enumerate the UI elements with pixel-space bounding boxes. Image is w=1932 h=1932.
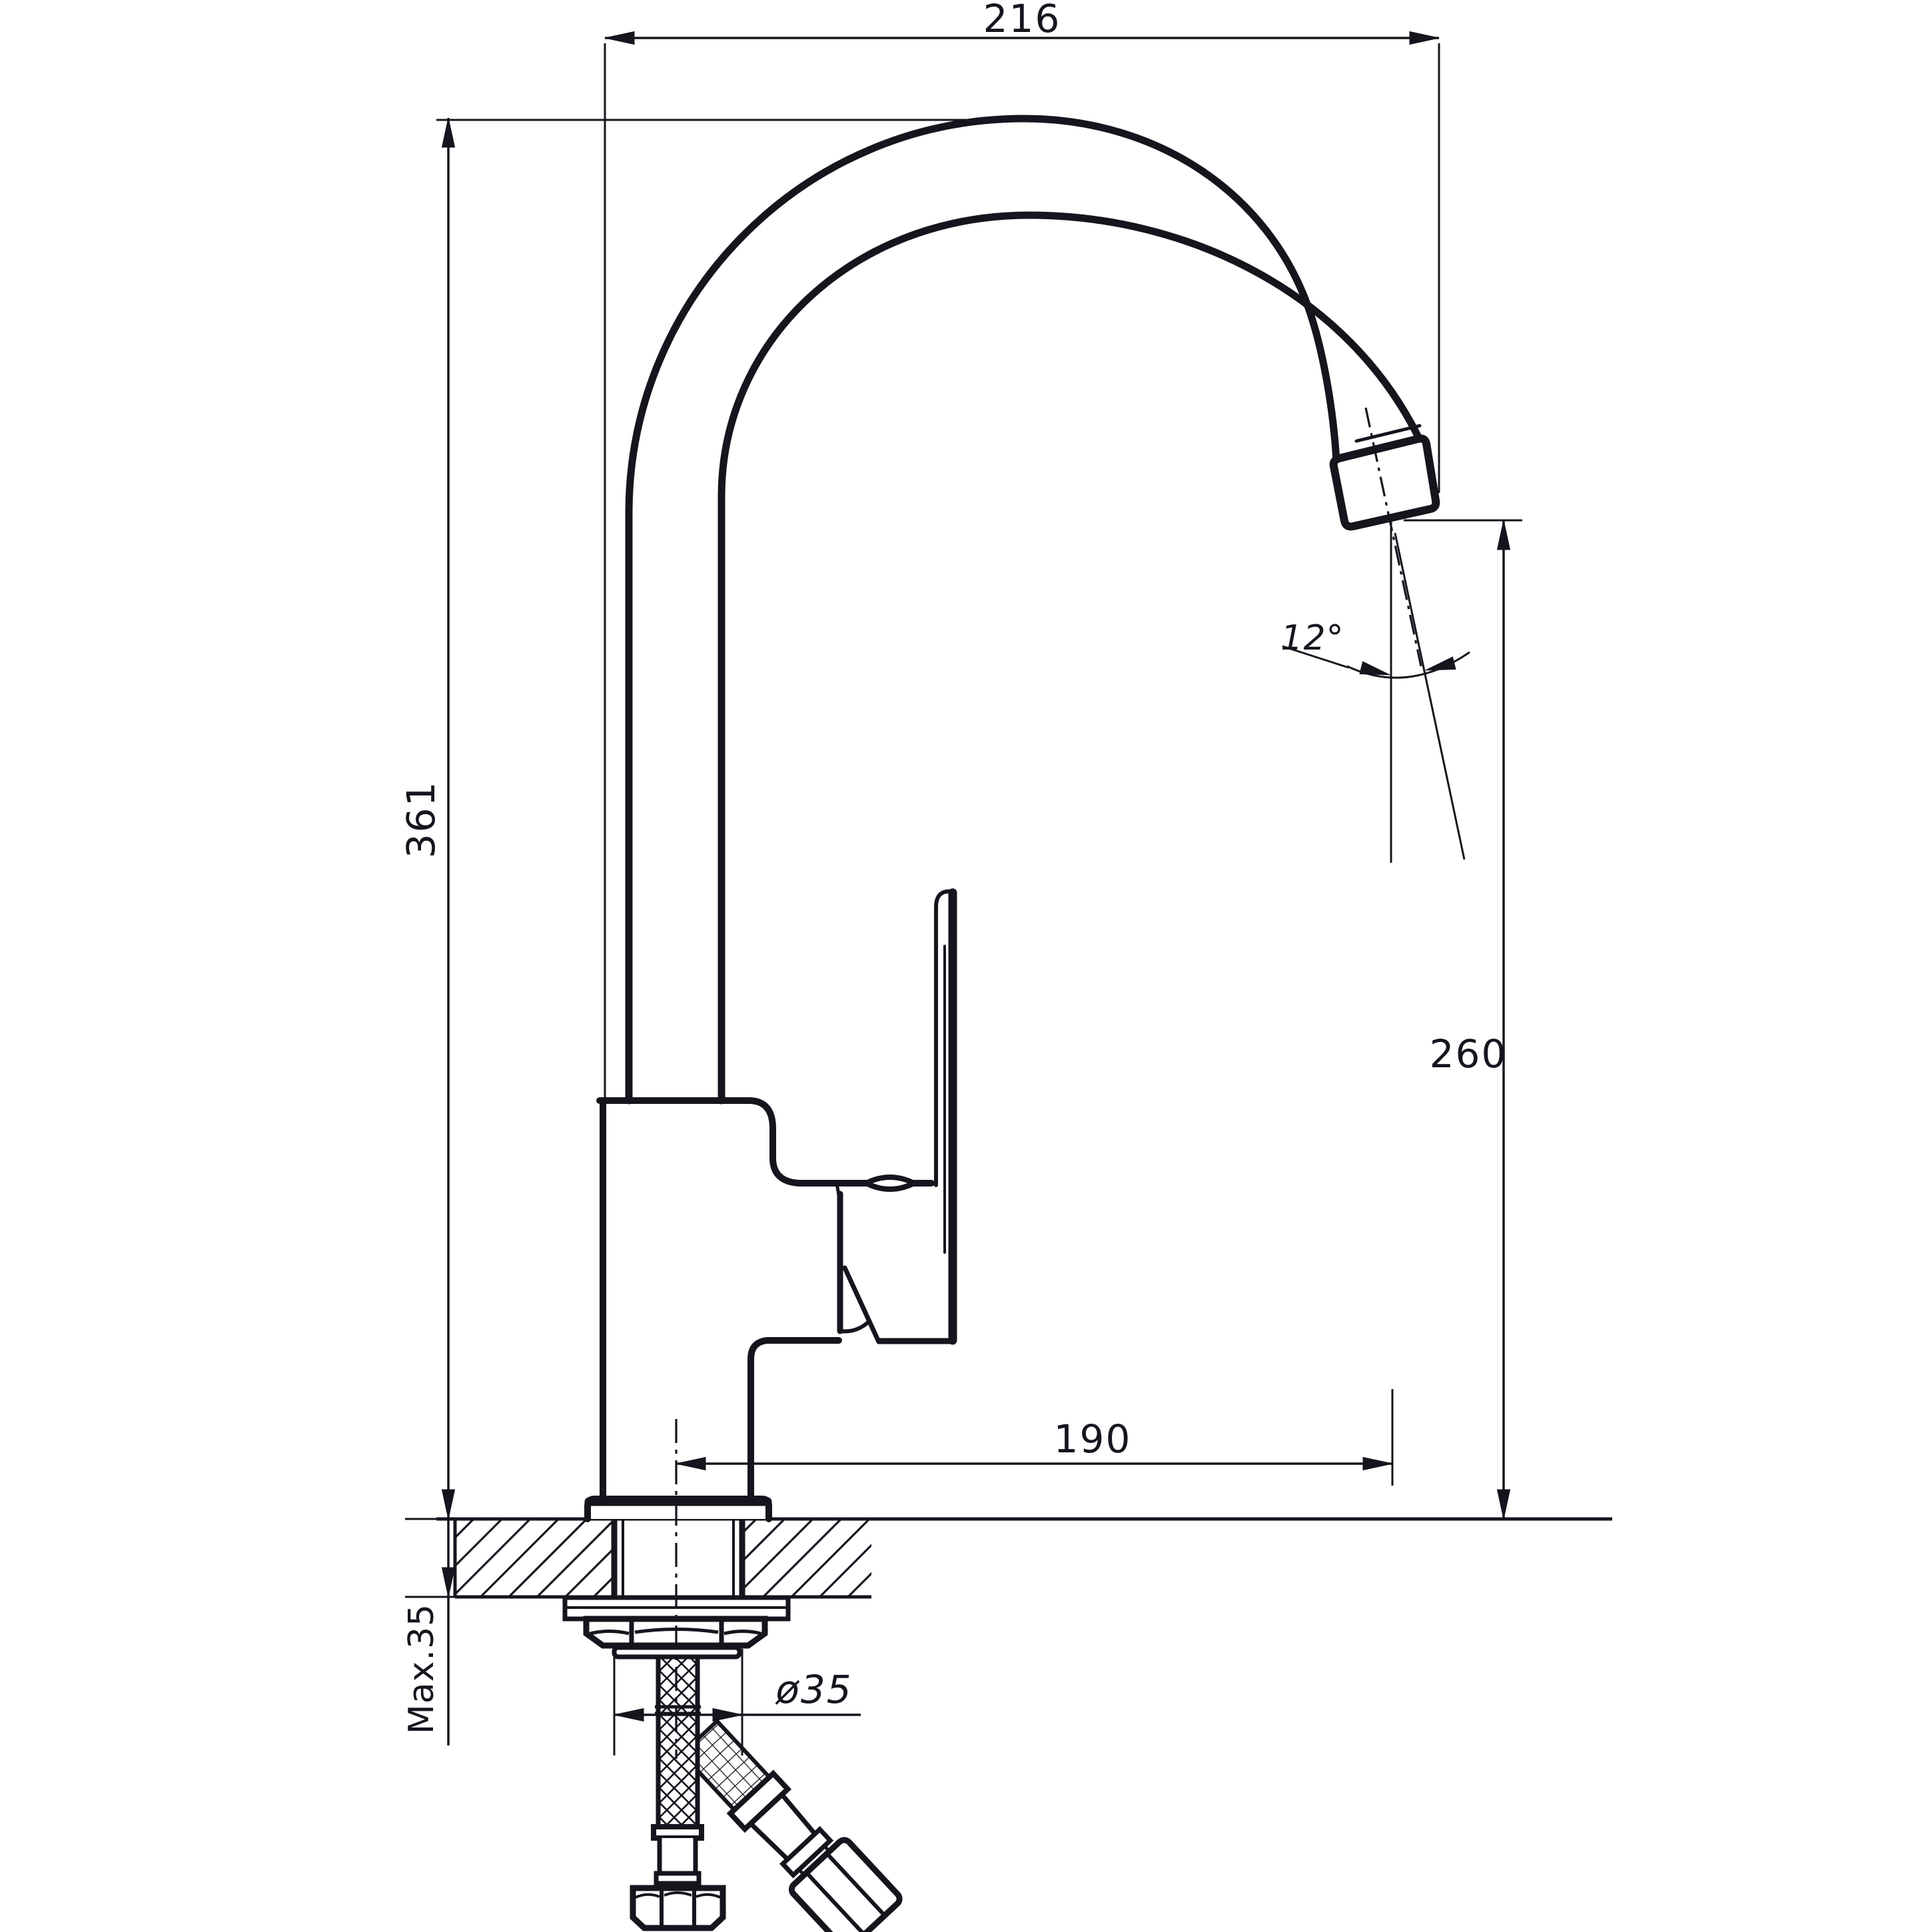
dimension-angle12 xyxy=(1282,521,1470,863)
dimension-190 xyxy=(676,1389,1392,1486)
hose1-ring xyxy=(656,1873,699,1883)
arrow-max35-bottom xyxy=(442,1568,455,1597)
dim-label-angle12: 12° xyxy=(1280,618,1344,658)
spout-outer-curve xyxy=(629,119,1336,1101)
arrow-361-bottom xyxy=(442,1490,455,1519)
cartridge-lens-detail xyxy=(866,1177,914,1189)
dim-label-max35: Max.35 xyxy=(402,1604,442,1734)
dim-label-216: 216 xyxy=(983,0,1061,41)
body-right-step-shelf xyxy=(751,1101,931,1183)
arrow-190-left xyxy=(676,1458,706,1470)
hose1-tube-bg xyxy=(660,1838,696,1873)
dim-label-dia35: ø35 xyxy=(775,1667,852,1712)
dim-label-190: 190 xyxy=(1054,1416,1132,1462)
arrow-dia35-left xyxy=(614,1709,644,1721)
countertop-hatch-right xyxy=(742,1519,871,1597)
dimension-260 xyxy=(1404,520,1522,1519)
arrow-216-right xyxy=(1410,32,1439,45)
angle-ref-slanted xyxy=(1395,533,1464,859)
arrow-dia35-right xyxy=(713,1709,742,1721)
dim-label-361: 361 xyxy=(398,781,444,859)
dim-label-260: 260 xyxy=(1430,1031,1508,1077)
lever-handle xyxy=(879,891,953,1341)
faucet-body xyxy=(588,119,1436,1519)
supply-hose-vertical xyxy=(633,1657,723,1928)
countertop-hatch-left xyxy=(455,1519,614,1597)
arrow-190-right xyxy=(1363,1458,1392,1470)
body-lower-right xyxy=(751,1340,839,1499)
arrow-260-top xyxy=(1498,520,1510,550)
hose1-braid xyxy=(658,1657,698,1827)
arrow-361-top xyxy=(442,118,455,147)
drawing-canvas: 216 361 Max.35 260 190 ø35 xyxy=(0,0,1932,1932)
aerator-tip-block xyxy=(1334,438,1436,526)
arrow-260-bottom xyxy=(1498,1490,1510,1519)
handle-pivot-arc xyxy=(840,1321,869,1331)
hose1-collar xyxy=(654,1827,702,1838)
arrow-216-left xyxy=(605,32,634,45)
faucet-dimension-drawing: 216 361 Max.35 260 190 ø35 xyxy=(0,0,1932,1932)
dimension-216 xyxy=(605,32,1439,1103)
